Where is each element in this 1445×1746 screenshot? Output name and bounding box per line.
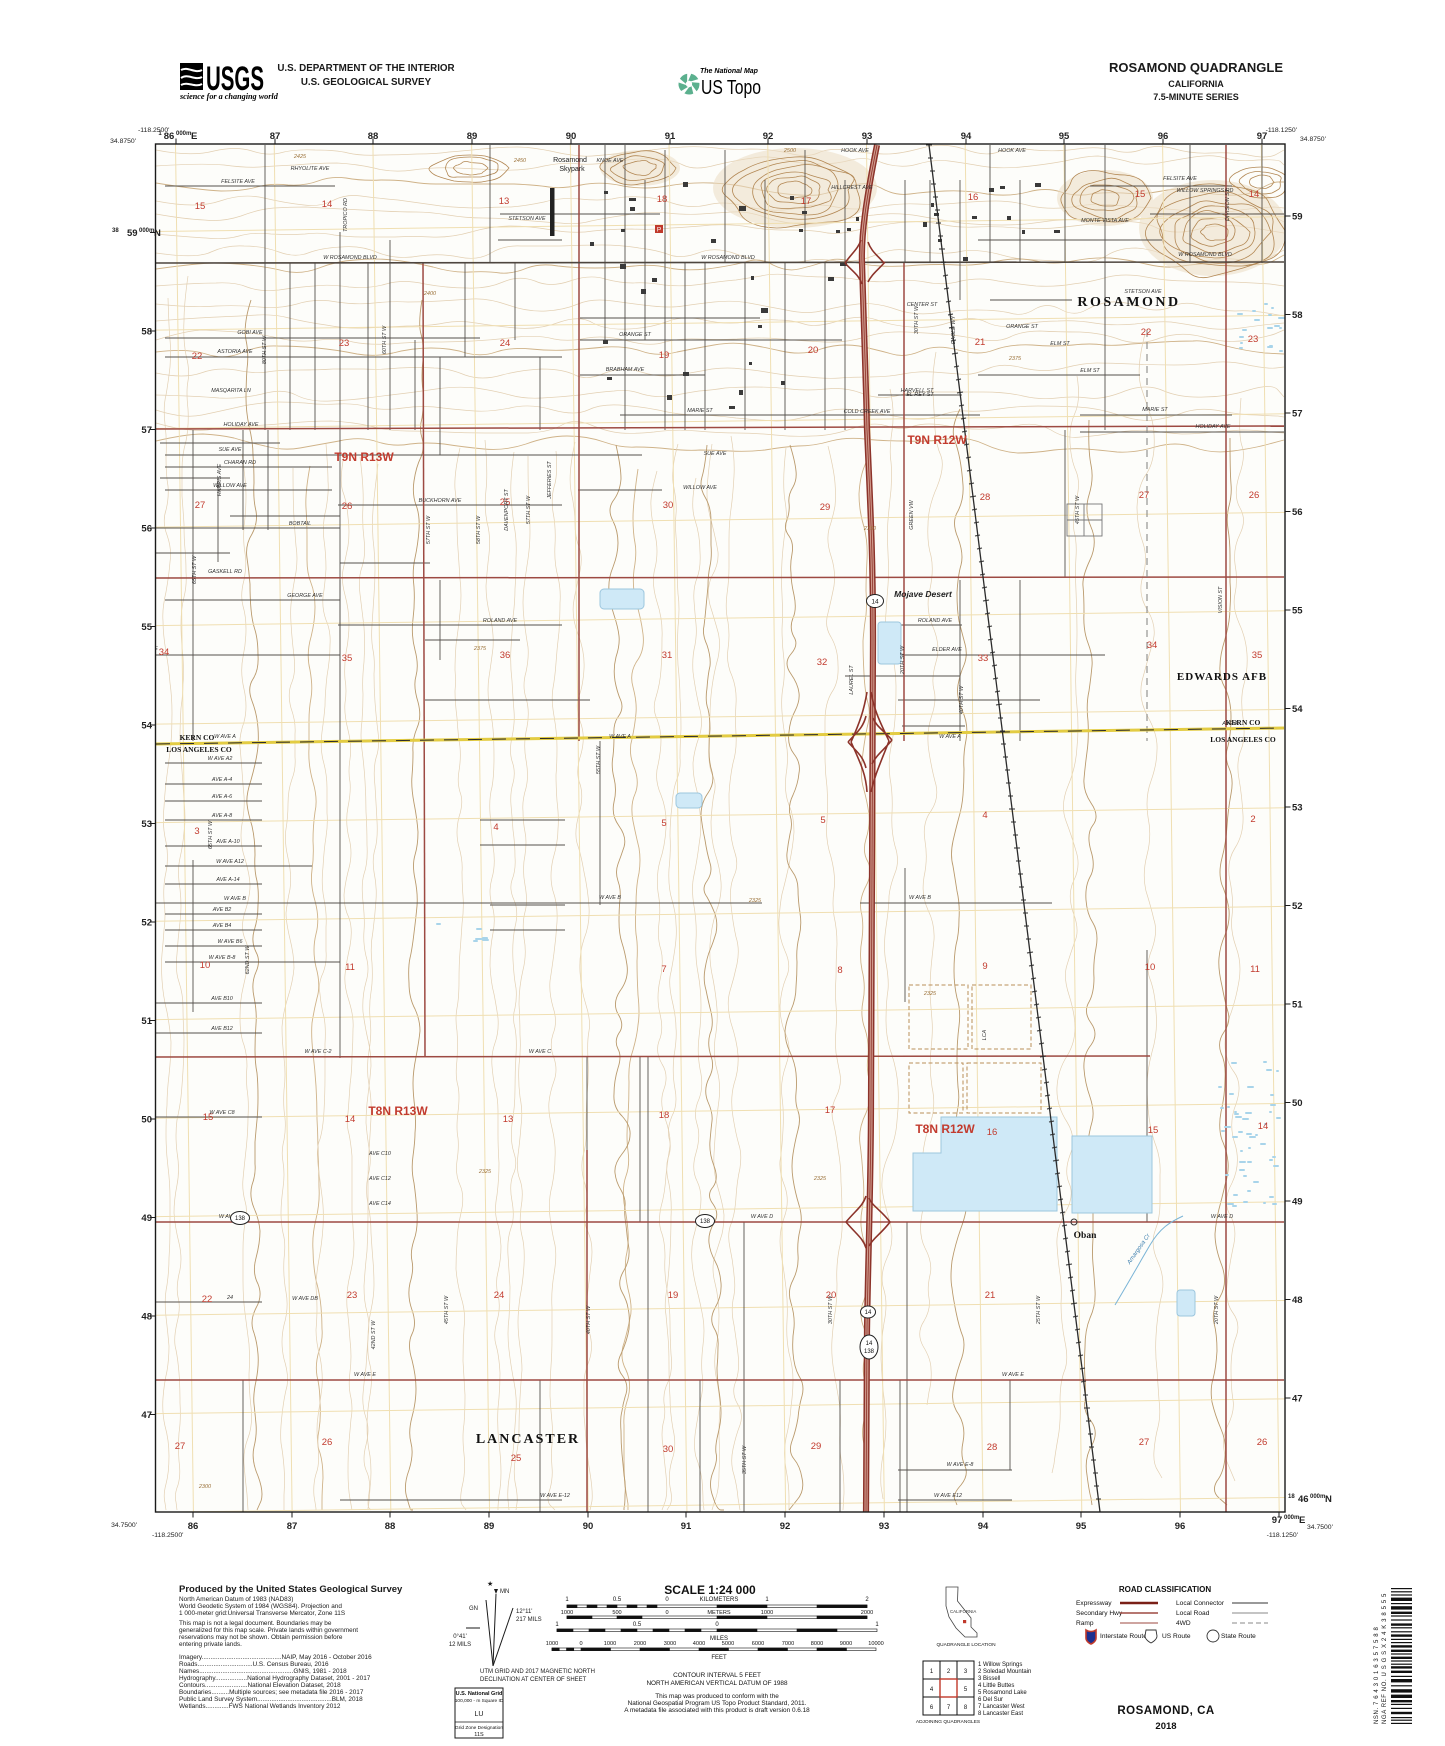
- svg-text:51: 51: [1292, 1000, 1303, 1011]
- svg-text:2375: 2375: [1008, 356, 1022, 362]
- svg-text:W AVE A12: W AVE A12: [216, 859, 244, 865]
- svg-text:11S: 11S: [474, 1732, 484, 1738]
- svg-text:45TH ST W: 45TH ST W: [1075, 495, 1081, 524]
- svg-text:7: 7: [661, 964, 666, 975]
- svg-text:MN: MN: [500, 1589, 509, 1595]
- svg-text:T8N R13W: T8N R13W: [368, 1104, 428, 1118]
- svg-text:North American Datum of 1983 (: North American Datum of 1983 (NAD83): [179, 1596, 293, 1603]
- svg-text:1 000-meter grid:Universal Tra: 1 000-meter grid:Universal Transverse Me…: [179, 1610, 345, 1617]
- svg-text:2: 2: [1250, 814, 1255, 825]
- svg-text:E: E: [191, 131, 197, 142]
- svg-text:34.7500': 34.7500': [111, 1522, 137, 1529]
- svg-text:000m: 000m: [1310, 1494, 1325, 1500]
- svg-text:T9N R13W: T9N R13W: [334, 450, 394, 464]
- svg-text:Oban: Oban: [1074, 1231, 1097, 1241]
- svg-text:reservations may not be shown.: reservations may not be shown. Obtain pe…: [179, 1634, 343, 1641]
- svg-text:NSN. 7 6 4 3 0 1 6 3 5 7 5 8 8: NSN. 7 6 4 3 0 1 6 3 5 7 5 8 8: [1374, 1627, 1380, 1724]
- svg-text:AVE C10: AVE C10: [368, 1151, 391, 1157]
- svg-text:METERS: METERS: [707, 1610, 731, 1616]
- svg-text:National Geospatial Program US: National Geospatial Program US Topo Prod…: [628, 1700, 807, 1707]
- svg-text:53: 53: [1292, 803, 1303, 814]
- svg-text:ROLAND AVE: ROLAND AVE: [483, 618, 518, 624]
- svg-text:W ROSAMOND BLVD: W ROSAMOND BLVD: [323, 255, 377, 261]
- svg-text:50: 50: [141, 1115, 152, 1126]
- svg-text:88: 88: [368, 131, 379, 142]
- svg-text:47: 47: [141, 1410, 152, 1421]
- svg-text:10: 10: [1145, 962, 1156, 973]
- svg-text:GASKELL RD: GASKELL RD: [208, 569, 242, 575]
- svg-text:2375: 2375: [473, 646, 487, 652]
- svg-text:TROPICO RD: TROPICO RD: [343, 198, 349, 232]
- svg-text:GOBI AVE: GOBI AVE: [237, 330, 263, 336]
- svg-text:LOS ANGELES CO: LOS ANGELES CO: [1210, 735, 1276, 744]
- svg-text:20TH ST W: 20TH ST W: [900, 645, 906, 675]
- svg-text:US Route: US Route: [1162, 1633, 1191, 1640]
- svg-text:62ND ST W: 62ND ST W: [245, 945, 251, 975]
- svg-text:CALIFORNIA: CALIFORNIA: [1168, 79, 1224, 89]
- svg-text:AVE A-10: AVE A-10: [215, 839, 239, 845]
- svg-text:ORANGE ST: ORANGE ST: [619, 332, 651, 338]
- svg-text:The National Map: The National Map: [700, 68, 759, 75]
- svg-text:1000: 1000: [546, 1641, 558, 1647]
- svg-text:27: 27: [1139, 1437, 1150, 1448]
- svg-text:HOOK AVE: HOOK AVE: [998, 148, 1026, 154]
- svg-text:STETSON AVE: STETSON AVE: [1124, 289, 1162, 295]
- svg-text:54: 54: [141, 721, 152, 732]
- svg-text:2325: 2325: [748, 898, 762, 904]
- svg-text:AVE A-14: AVE A-14: [215, 877, 239, 883]
- svg-text:19: 19: [668, 1290, 679, 1301]
- svg-text:ELM ST: ELM ST: [1080, 368, 1100, 374]
- svg-text:ORANGE ST: ORANGE ST: [1006, 324, 1038, 330]
- svg-text:14: 14: [345, 1114, 356, 1125]
- svg-text:9000: 9000: [840, 1641, 852, 1647]
- svg-text:ROSAMOND: ROSAMOND: [1077, 295, 1180, 310]
- svg-text:14: 14: [322, 199, 333, 210]
- svg-text:57: 57: [141, 425, 152, 436]
- svg-text:Imagery.......................: Imagery.................................…: [179, 1654, 372, 1661]
- svg-text:12 MILS: 12 MILS: [449, 1642, 471, 1648]
- svg-text:138: 138: [235, 1216, 246, 1222]
- svg-text:W AVE C: W AVE C: [529, 1049, 551, 1055]
- svg-text:Contours......................: Contours........................National…: [179, 1682, 341, 1689]
- svg-text:U.S. DEPARTMENT OF THE INTERIO: U.S. DEPARTMENT OF THE INTERIOR: [277, 63, 454, 74]
- svg-text:WILLOW AVE: WILLOW AVE: [683, 485, 717, 491]
- svg-text:30: 30: [663, 1444, 674, 1455]
- svg-text:55TH ST W: 55TH ST W: [596, 745, 602, 774]
- svg-text:State Route: State Route: [1221, 1633, 1256, 1640]
- svg-text:92: 92: [780, 1521, 791, 1532]
- svg-text:91: 91: [665, 131, 676, 142]
- svg-text:59: 59: [127, 228, 138, 239]
- svg-text:9: 9: [982, 961, 987, 972]
- svg-text:26: 26: [322, 1437, 333, 1448]
- svg-text:-118.1250': -118.1250': [1266, 127, 1297, 134]
- svg-text:HOOK AVE: HOOK AVE: [841, 148, 869, 154]
- svg-text:CONTOUR INTERVAL 5 FEET: CONTOUR INTERVAL 5 FEET: [673, 1672, 761, 1679]
- svg-text:Hydrography..................N: Hydrography..................National Hy…: [179, 1675, 371, 1682]
- svg-text:SUE AVE: SUE AVE: [219, 447, 242, 453]
- svg-text:95: 95: [1059, 131, 1070, 142]
- svg-text:45TH ST W: 45TH ST W: [444, 1295, 450, 1324]
- svg-text:3000: 3000: [664, 1641, 676, 1647]
- svg-text:56: 56: [1292, 507, 1303, 518]
- svg-text:2350: 2350: [863, 526, 877, 532]
- svg-text:25TH ST W: 25TH ST W: [1036, 1295, 1042, 1325]
- svg-text:MARIE ST: MARIE ST: [1142, 407, 1168, 413]
- svg-text:2400: 2400: [423, 291, 437, 297]
- svg-text:57: 57: [1292, 409, 1303, 420]
- svg-text:A metadata file associated wit: A metadata file associated with this pro…: [624, 1707, 810, 1714]
- svg-text:49: 49: [141, 1213, 152, 1224]
- svg-text:LAUREL ST: LAUREL ST: [849, 665, 855, 695]
- svg-text:W AVE D: W AVE D: [1211, 1214, 1233, 1220]
- svg-text:3: 3: [194, 826, 199, 837]
- svg-text:15: 15: [195, 201, 206, 212]
- svg-text:ADJOINING QUADRANGLES: ADJOINING QUADRANGLES: [916, 1719, 980, 1725]
- svg-text:1000: 1000: [561, 1610, 573, 1616]
- svg-text:24: 24: [494, 1290, 505, 1301]
- svg-text:6 Del Sur: 6 Del Sur: [978, 1697, 1003, 1703]
- svg-text:Skypark: Skypark: [559, 166, 585, 173]
- svg-text:W AVE B: W AVE B: [909, 895, 931, 901]
- svg-text:SCALE 1:24 000: SCALE 1:24 000: [664, 1583, 756, 1597]
- svg-text:-118.2500': -118.2500': [152, 1532, 183, 1539]
- svg-text:56: 56: [141, 524, 152, 535]
- svg-text:65TH ST W: 65TH ST W: [208, 820, 214, 849]
- svg-text:COLD CREEK AVE: COLD CREEK AVE: [844, 409, 891, 415]
- svg-text:US Topo: US Topo: [701, 76, 761, 99]
- svg-text:Boundaries..........Multiple: Boundaries..........Multiple sources; se…: [179, 1689, 364, 1696]
- svg-text:0°41': 0°41': [453, 1634, 467, 1640]
- svg-text:science for a changing world: science for a changing world: [179, 92, 279, 101]
- svg-text:Interstate Route: Interstate Route: [1100, 1633, 1147, 1640]
- svg-text:FELSITE AVE: FELSITE AVE: [1163, 176, 1197, 182]
- svg-text:217 MILS: 217 MILS: [516, 1617, 542, 1623]
- svg-text:Roads.........................: Roads...............................U.S.…: [179, 1661, 329, 1668]
- svg-text:T9N R12W: T9N R12W: [907, 433, 967, 447]
- svg-text:BOBTAIL: BOBTAIL: [289, 521, 311, 527]
- svg-text:15: 15: [1135, 189, 1146, 200]
- svg-text:17: 17: [801, 196, 812, 207]
- svg-text:30TH ST W: 30TH ST W: [914, 305, 920, 334]
- svg-text:KILOMETERS: KILOMETERS: [700, 1597, 739, 1603]
- svg-text:11: 11: [345, 962, 355, 973]
- svg-text:P: P: [657, 227, 661, 234]
- svg-text:10000: 10000: [868, 1641, 884, 1647]
- svg-text:AVE B12: AVE B12: [210, 1026, 233, 1032]
- svg-text:CHARAN RD: CHARAN RD: [224, 460, 256, 466]
- svg-text:5000: 5000: [722, 1641, 734, 1647]
- svg-text:0.5: 0.5: [633, 1622, 642, 1628]
- svg-text:35: 35: [342, 653, 353, 664]
- svg-text:18: 18: [657, 194, 668, 205]
- svg-text:16: 16: [987, 1127, 998, 1138]
- svg-text:4: 4: [493, 822, 498, 833]
- svg-text:40TH ST W: 40TH ST W: [959, 685, 965, 714]
- svg-text:2000: 2000: [861, 1610, 873, 1616]
- svg-text:54: 54: [1292, 704, 1303, 715]
- svg-text:2325: 2325: [923, 991, 937, 997]
- svg-text:AVE A-6: AVE A-6: [211, 794, 232, 800]
- svg-text:000m: 000m: [1284, 1515, 1299, 1521]
- svg-text:87: 87: [287, 1521, 298, 1532]
- svg-text:SUE AVE: SUE AVE: [704, 451, 727, 457]
- svg-text:7 Lancaster West: 7 Lancaster West: [978, 1704, 1025, 1710]
- svg-text:W AVE B: W AVE B: [224, 896, 246, 902]
- svg-text:AVE A-4: AVE A-4: [211, 777, 232, 783]
- svg-text:MONTE VISTA AVE: MONTE VISTA AVE: [1081, 218, 1129, 224]
- svg-text:HILLCREST AVE: HILLCREST AVE: [831, 185, 873, 191]
- svg-text:30TH ST W: 30TH ST W: [828, 1295, 834, 1324]
- svg-text:27: 27: [1139, 490, 1150, 501]
- svg-text:W ROSAMOND BLVD: W ROSAMOND BLVD: [701, 255, 755, 261]
- svg-text:Grid Zone Designation: Grid Zone Designation: [455, 1725, 503, 1731]
- svg-text:6000: 6000: [752, 1641, 764, 1647]
- svg-text:4WD: 4WD: [1176, 1620, 1191, 1627]
- svg-text:AVE B2: AVE B2: [212, 907, 232, 913]
- svg-text:2 Soledad Mountain: 2 Soledad Mountain: [978, 1669, 1031, 1675]
- svg-text:BUCKHORN AVE: BUCKHORN AVE: [419, 498, 462, 504]
- svg-text:28: 28: [980, 492, 991, 503]
- svg-text:-118.1250': -118.1250': [1267, 1532, 1298, 1539]
- svg-text:This map was produced to confo: This map was produced to conform with th…: [655, 1693, 779, 1700]
- svg-text:20TH ST W: 20TH ST W: [1214, 1295, 1220, 1325]
- svg-text:95: 95: [1076, 1521, 1087, 1532]
- svg-text:HOLIDAY AVE: HOLIDAY AVE: [1196, 424, 1231, 430]
- svg-text:52: 52: [1292, 901, 1303, 912]
- svg-text:87: 87: [270, 131, 281, 142]
- svg-text:W AVE E: W AVE E: [1002, 1372, 1024, 1378]
- svg-text:4 Little Buttes: 4 Little Buttes: [978, 1683, 1014, 1689]
- svg-text:0: 0: [665, 1610, 668, 1616]
- svg-text:2018: 2018: [1155, 1721, 1176, 1732]
- svg-text:2450: 2450: [513, 158, 527, 164]
- svg-text:W AVE B: W AVE B: [599, 895, 621, 901]
- svg-text:57TH ST W: 57TH ST W: [526, 495, 532, 524]
- svg-text:Produced by the United States: Produced by the United States Geological…: [179, 1584, 403, 1595]
- svg-text:29: 29: [811, 1441, 822, 1452]
- svg-text:38: 38: [112, 228, 119, 234]
- svg-text:32: 32: [817, 657, 828, 668]
- svg-text:23: 23: [339, 338, 350, 349]
- svg-text:27: 27: [175, 1441, 186, 1452]
- svg-text:2425: 2425: [293, 154, 307, 160]
- svg-text:E: E: [1299, 1515, 1305, 1526]
- svg-text:20: 20: [808, 345, 819, 356]
- svg-text:29: 29: [820, 502, 831, 513]
- svg-text:RHYOLITE AVE: RHYOLITE AVE: [291, 166, 330, 172]
- svg-text:65TH ST W: 65TH ST W: [192, 555, 198, 584]
- svg-text:91: 91: [681, 1521, 692, 1532]
- svg-text:2500: 2500: [783, 148, 797, 154]
- svg-text:1000: 1000: [761, 1610, 773, 1616]
- svg-text:Mojave Desert: Mojave Desert: [894, 589, 953, 599]
- svg-text:21: 21: [975, 337, 986, 348]
- svg-text:24: 24: [226, 1295, 233, 1301]
- svg-text:96: 96: [1175, 1521, 1186, 1532]
- svg-text:DIVISION ST: DIVISION ST: [1225, 188, 1231, 221]
- svg-text:50: 50: [1292, 1098, 1303, 1109]
- svg-text:DECLINATION AT CENTER OF SHEET: DECLINATION AT CENTER OF SHEET: [480, 1677, 587, 1683]
- svg-text:34: 34: [159, 647, 170, 658]
- svg-text:W AVE A: W AVE A: [214, 734, 236, 740]
- svg-text:19: 19: [659, 350, 670, 361]
- svg-text:15: 15: [1148, 1125, 1159, 1136]
- svg-text:5 Rosamond Lake: 5 Rosamond Lake: [978, 1690, 1027, 1696]
- svg-text:31: 31: [662, 650, 673, 661]
- svg-text:92: 92: [763, 131, 774, 142]
- svg-text:GEORGE AVE: GEORGE AVE: [287, 593, 323, 599]
- svg-text:40TH ST W: 40TH ST W: [586, 1305, 592, 1334]
- svg-text:U.S. National Grid: U.S. National Grid: [456, 1691, 503, 1697]
- svg-text:51: 51: [141, 1016, 152, 1027]
- svg-text:000m: 000m: [139, 228, 154, 234]
- svg-text:53: 53: [141, 819, 152, 830]
- svg-text:T8N R12W: T8N R12W: [915, 1122, 975, 1136]
- svg-text:25: 25: [511, 1453, 522, 1464]
- svg-text:generalized for this map scale: generalized for this map scale. Private …: [179, 1627, 358, 1634]
- svg-text:22: 22: [192, 351, 203, 362]
- svg-text:World Geodetic System of 1984: World Geodetic System of 1984 (WGS84). P…: [179, 1603, 342, 1610]
- svg-text:LANCASTER: LANCASTER: [476, 1432, 580, 1447]
- svg-text:000m: 000m: [176, 131, 191, 137]
- svg-text:90: 90: [583, 1521, 594, 1532]
- svg-text:90: 90: [566, 131, 577, 142]
- svg-text:80TH ST W: 80TH ST W: [262, 335, 268, 364]
- svg-text:8 Lancaster East: 8 Lancaster East: [978, 1711, 1023, 1717]
- svg-text:Wetlands.............FWS: Wetlands.............FWS National Wetlan…: [179, 1703, 341, 1710]
- svg-text:Public Land Survey System..: Public Land Survey System...............…: [179, 1696, 363, 1703]
- svg-text:8000: 8000: [811, 1641, 823, 1647]
- svg-text:entering private lands.: entering private lands.: [179, 1641, 242, 1648]
- svg-text:AVE A: AVE A: [1221, 721, 1238, 727]
- svg-text:NGA REF NO. U S G S X 2 4 K 3: NGA REF NO. U S G S X 2 4 K 3 8 5 5 5: [1382, 1593, 1388, 1724]
- svg-text:5: 5: [820, 815, 825, 826]
- svg-text:ROSAMOND QUADRANGLE: ROSAMOND QUADRANGLE: [1109, 60, 1283, 75]
- svg-text:18: 18: [1288, 1494, 1295, 1500]
- svg-text:42ND ST W: 42ND ST W: [371, 1320, 377, 1350]
- svg-text:96: 96: [1158, 131, 1169, 142]
- svg-text:13: 13: [503, 1114, 514, 1125]
- svg-text:36: 36: [500, 650, 511, 661]
- svg-text:AVE C14: AVE C14: [368, 1201, 391, 1207]
- svg-text:60TH ST W: 60TH ST W: [382, 325, 388, 354]
- svg-text:QUADRANGLE LOCATION: QUADRANGLE LOCATION: [936, 1642, 996, 1648]
- svg-text:4: 4: [982, 810, 987, 821]
- svg-text:24: 24: [500, 338, 511, 349]
- svg-text:HOLIDAY AVE: HOLIDAY AVE: [224, 422, 259, 428]
- svg-text:0: 0: [579, 1641, 582, 1647]
- svg-text:22: 22: [1141, 327, 1152, 338]
- svg-text:W AVE A: W AVE A: [939, 734, 961, 740]
- svg-text:GN: GN: [469, 1606, 478, 1612]
- svg-text:2000: 2000: [634, 1641, 646, 1647]
- svg-text:93: 93: [862, 131, 873, 142]
- svg-text:17: 17: [825, 1105, 836, 1116]
- svg-text:94: 94: [961, 131, 972, 142]
- svg-text:34.7500': 34.7500': [1307, 1524, 1333, 1531]
- svg-text:NORTH AMERICAN VERTICAL DATUM: NORTH AMERICAN VERTICAL DATUM OF 1988: [646, 1680, 788, 1687]
- svg-text:14: 14: [1258, 1121, 1269, 1132]
- svg-text:55: 55: [1292, 606, 1303, 617]
- svg-text:88: 88: [385, 1521, 396, 1532]
- svg-text:W AVE B6: W AVE B6: [218, 939, 243, 945]
- svg-text:AVE B10: AVE B10: [210, 996, 233, 1002]
- svg-text:W AVE B-8: W AVE B-8: [209, 955, 236, 961]
- svg-text:14: 14: [865, 1310, 872, 1316]
- svg-text:ELDER AVE: ELDER AVE: [932, 647, 962, 653]
- svg-text:W AVE DB: W AVE DB: [292, 1296, 318, 1302]
- svg-text:ROLAND AVE: ROLAND AVE: [918, 618, 953, 624]
- svg-text:138: 138: [864, 1349, 875, 1355]
- svg-text:94: 94: [978, 1521, 989, 1532]
- svg-text:11: 11: [1250, 964, 1260, 975]
- svg-text:18: 18: [659, 1110, 670, 1121]
- svg-text:Names.........................: Names...................................…: [179, 1668, 347, 1675]
- svg-text:Ramp: Ramp: [1076, 1620, 1094, 1627]
- svg-text:W AVE E-12: W AVE E-12: [540, 1493, 570, 1499]
- svg-text:34.8750': 34.8750': [110, 138, 136, 145]
- svg-text:47: 47: [1292, 1394, 1303, 1405]
- svg-text:This map is not a legal docume: This map is not a legal document. Bounda…: [179, 1620, 332, 1627]
- svg-text:5: 5: [661, 818, 666, 829]
- svg-text:52: 52: [141, 918, 152, 929]
- svg-text:7.5-MINUTE SERIES: 7.5-MINUTE SERIES: [1153, 92, 1239, 102]
- svg-text:CENTER ST: CENTER ST: [907, 302, 938, 308]
- svg-text:DAVENPORT ST: DAVENPORT ST: [504, 489, 510, 531]
- svg-text:W AVE A: W AVE A: [609, 734, 631, 740]
- svg-text:26: 26: [342, 501, 353, 512]
- svg-text:0.5: 0.5: [613, 1597, 622, 1603]
- svg-text:58: 58: [1292, 310, 1303, 321]
- svg-text:EL REY ST: EL REY ST: [906, 392, 934, 398]
- svg-text:1 Willow Springs: 1 Willow Springs: [978, 1662, 1022, 1668]
- svg-text:57TH ST W: 57TH ST W: [426, 515, 432, 544]
- svg-text:KERN CO: KERN CO: [180, 733, 215, 742]
- svg-text:EDWARDS AFB: EDWARDS AFB: [1177, 671, 1267, 683]
- svg-text:35TH ST W: 35TH ST W: [742, 1445, 748, 1474]
- svg-text:55: 55: [141, 622, 152, 633]
- svg-text:N: N: [154, 228, 161, 239]
- svg-text:500: 500: [612, 1610, 621, 1616]
- svg-text:MASQARITA LN: MASQARITA LN: [211, 388, 251, 394]
- svg-text:W ROSAMOND BLVD: W ROSAMOND BLVD: [1178, 252, 1232, 258]
- svg-text:AVE A-8: AVE A-8: [211, 813, 232, 819]
- svg-text:48: 48: [1292, 1295, 1303, 1306]
- svg-text:23: 23: [1248, 334, 1259, 345]
- svg-text:46: 46: [1298, 1494, 1309, 1505]
- svg-text:VISION ST: VISION ST: [1218, 586, 1224, 613]
- svg-text:W AVE C8: W AVE C8: [209, 1110, 234, 1116]
- svg-text:3 Bissell: 3 Bissell: [978, 1676, 1000, 1682]
- svg-text:30: 30: [663, 500, 674, 511]
- svg-text:W AVE D: W AVE D: [751, 1214, 773, 1220]
- svg-text:4000: 4000: [693, 1641, 705, 1647]
- svg-text:89: 89: [484, 1521, 495, 1532]
- svg-text:138: 138: [700, 1219, 711, 1225]
- svg-text:FEET: FEET: [711, 1655, 727, 1661]
- svg-text:2325: 2325: [478, 1169, 492, 1175]
- svg-text:W AVE A2: W AVE A2: [208, 756, 233, 762]
- svg-text:97: 97: [1272, 1515, 1283, 1526]
- svg-text:23: 23: [347, 1290, 358, 1301]
- svg-text:HARRIS AVE: HARRIS AVE: [217, 464, 223, 497]
- svg-text:LU: LU: [475, 1711, 484, 1718]
- svg-text:ASTORIA AVE: ASTORIA AVE: [216, 349, 253, 355]
- svg-text:28: 28: [987, 1442, 998, 1453]
- svg-text:★: ★: [487, 1580, 493, 1588]
